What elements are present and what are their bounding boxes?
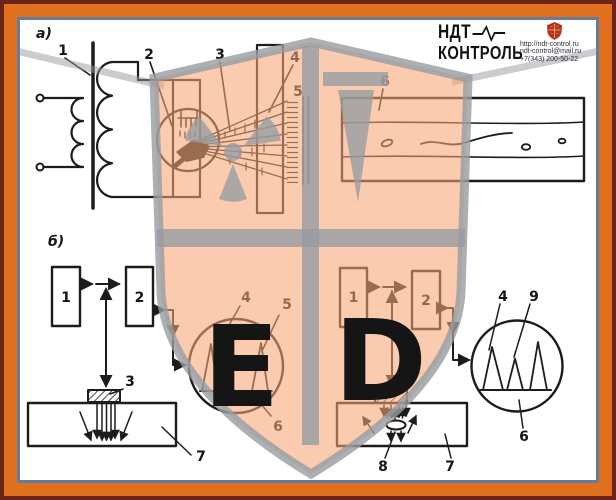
website-text: http://ndt-control.ru xyxy=(520,41,592,48)
callout-4-initial-pulse: 4 xyxy=(498,289,508,305)
callout-7-test-piece: 7 xyxy=(196,449,206,465)
callout-7-test-piece: 7 xyxy=(445,459,455,475)
callout-6-screen: 6 xyxy=(519,429,529,445)
section-label-b: б) xyxy=(48,234,64,250)
phone-text: +7(343) 200-50-22 xyxy=(520,56,592,63)
receiver-block-label: 2 xyxy=(135,290,145,306)
watermark-pulse-stripe-left xyxy=(12,50,164,86)
primary-winding xyxy=(72,98,84,167)
callout-9-defect-echo: 9 xyxy=(529,289,539,305)
initial-pulse xyxy=(483,347,503,390)
defect-echo-pulse xyxy=(507,359,523,391)
brand-name-top: НДТ xyxy=(438,24,471,42)
oscilloscope-right xyxy=(472,321,563,412)
company-header: НДТ КОНТРОЛЬ http://ndt-control.ru ndt-c… xyxy=(436,22,592,70)
callout-8-defect: 8 xyxy=(378,459,388,475)
secondary-winding xyxy=(97,62,112,197)
brand-name-bottom: КОНТРОЛЬ xyxy=(438,44,523,63)
watermark-letter-br: D xyxy=(334,297,427,427)
callout-3-transducer: 3 xyxy=(125,374,135,390)
callout-2-xray-tube: 2 xyxy=(144,47,154,63)
contact-block: http://ndt-control.ru ndt-control@mail.r… xyxy=(520,22,592,63)
pulse-waveform-icon xyxy=(473,24,506,42)
bottom-echo-pulse xyxy=(530,342,547,390)
generator-block-label: 1 xyxy=(61,290,71,306)
ultrasound-beam xyxy=(80,404,132,440)
figure-canvas: а) xyxy=(0,0,616,500)
callout-1-transformer: 1 xyxy=(58,43,68,59)
primary-leads xyxy=(44,98,84,167)
shield-logo-icon xyxy=(547,22,562,40)
watermark: Е D xyxy=(12,42,604,474)
section-label-a: а) xyxy=(36,26,52,42)
email-text: ndt-control@mail.ru xyxy=(520,48,592,55)
brand-logo: НДТ КОНТРОЛЬ xyxy=(438,24,523,63)
watermark-letter-bl: Е xyxy=(203,303,280,433)
scanned-figure-page: а) xyxy=(0,0,616,500)
